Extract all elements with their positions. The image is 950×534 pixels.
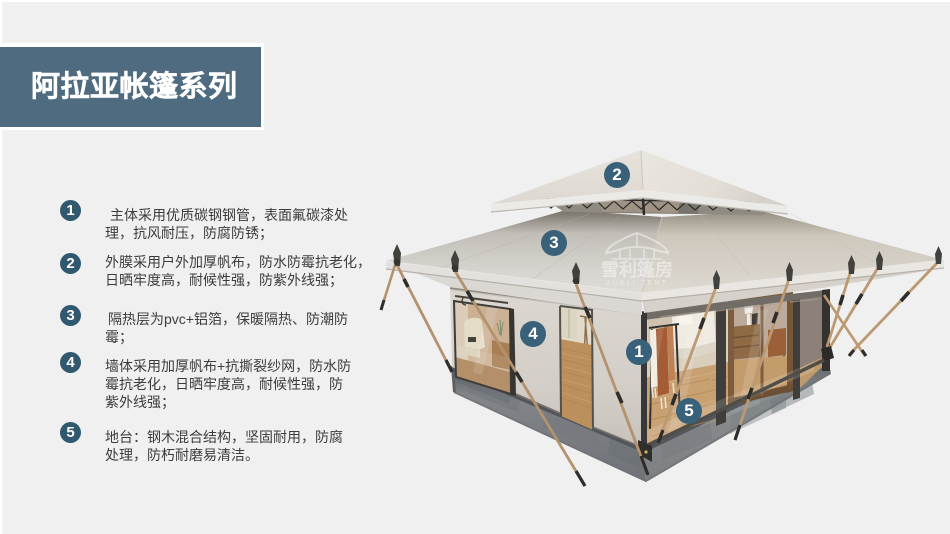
svg-text:雪利篷房: 雪利篷房 (601, 259, 673, 280)
svg-text:XUELI TENT: XUELI TENT (606, 280, 668, 287)
